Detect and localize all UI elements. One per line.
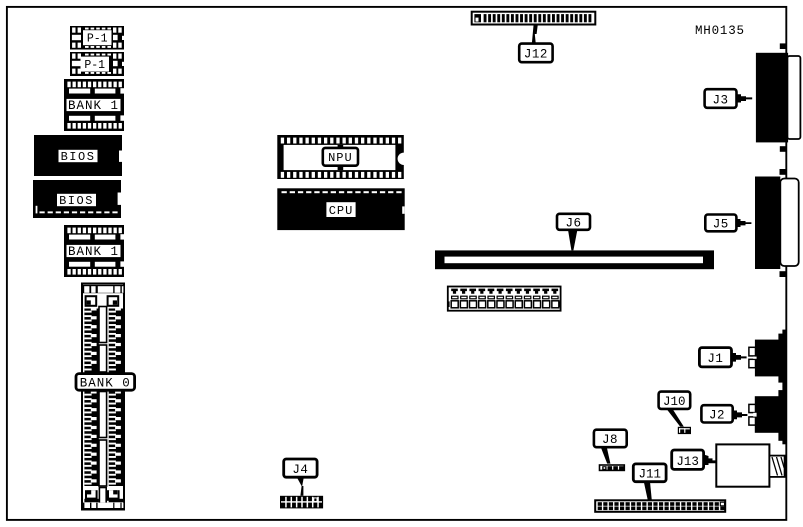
svg-text:P-1: P-1: [84, 59, 105, 72]
svg-text:BANK 1: BANK 1: [68, 99, 119, 113]
svg-text:J4: J4: [292, 463, 308, 477]
svg-text:BIOS: BIOS: [61, 150, 96, 164]
svg-text:P-1: P-1: [87, 33, 108, 46]
svg-text:J6: J6: [565, 216, 581, 230]
svg-text:NPU: NPU: [328, 151, 353, 165]
svg-text:J10: J10: [663, 395, 686, 409]
svg-text:J3: J3: [712, 93, 728, 107]
svg-text:CPU: CPU: [329, 204, 354, 218]
svg-text:J11: J11: [638, 468, 661, 482]
svg-text:BIOS: BIOS: [59, 194, 94, 208]
svg-text:J13: J13: [676, 455, 699, 469]
svg-text:J8: J8: [602, 433, 618, 447]
svg-text:J5: J5: [713, 217, 729, 231]
svg-text:J2: J2: [709, 409, 725, 423]
svg-text:J1: J1: [707, 352, 723, 366]
svg-text:BANK 1: BANK 1: [68, 245, 119, 259]
svg-text:MH0135: MH0135: [695, 24, 745, 38]
svg-text:J12: J12: [524, 48, 548, 62]
svg-text:BANK 0: BANK 0: [80, 376, 131, 390]
